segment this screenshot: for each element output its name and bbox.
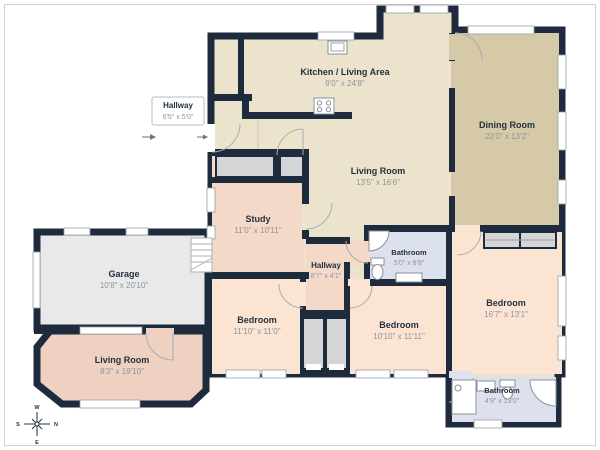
room-dims-bedroom-left: 11'10" x 11'0" (233, 327, 280, 336)
toilet-icon (372, 265, 383, 280)
door-gap (302, 204, 309, 230)
compass-hub (35, 422, 39, 426)
closet-door (329, 364, 344, 370)
door-gap (348, 279, 370, 286)
bedroom-left-fill (212, 278, 303, 374)
wall (306, 237, 350, 244)
hallway-callout: Hallway 6'5" x 5'0" (142, 97, 208, 140)
toilet-tank-icon (371, 258, 384, 265)
callout-dims: 6'5" x 5'0" (163, 114, 194, 121)
room-label-hallway-center: Hallway (311, 261, 341, 270)
floor-plan-page: Kitchen / Living Area 9'0" x 24'8" Livin… (0, 0, 600, 450)
window (420, 5, 448, 13)
room-label-kitchen-living: Kitchen / Living Area (300, 67, 390, 77)
door-gap (300, 282, 306, 306)
closet-door (306, 364, 321, 370)
window (33, 252, 40, 308)
compass-icon: W S N E (16, 405, 58, 446)
room-label-bathroom-center: Bathroom (391, 248, 427, 257)
window (207, 226, 215, 239)
compass-left-label: S (16, 422, 20, 428)
window (64, 228, 90, 235)
callout-title: Hallway (163, 101, 193, 110)
room-dims-bathroom-center: 5'0" x 8'8" (394, 260, 425, 267)
room-label-bedroom-left: Bedroom (237, 315, 277, 325)
room-label-bedroom-right: Bedroom (486, 298, 526, 308)
stairs-icon (191, 238, 212, 272)
shower-stall-icon (452, 380, 476, 414)
room-dims-hallway-center: 8'7" x 4'1" (311, 273, 342, 280)
window (468, 26, 534, 34)
wall (449, 88, 455, 172)
wall (302, 310, 350, 316)
cooktop-icon (314, 98, 334, 114)
window (80, 327, 142, 334)
window (558, 112, 566, 150)
window (356, 370, 390, 378)
window (558, 55, 566, 89)
kitchen-counter-wall (242, 112, 352, 119)
window (558, 276, 566, 326)
window (318, 32, 354, 40)
door-gap (146, 328, 174, 335)
window (207, 188, 215, 212)
wall (208, 272, 309, 279)
wall (238, 33, 244, 97)
compass-right-label: N (54, 422, 58, 428)
floor-plan-drawing: Kitchen / Living Area 9'0" x 24'8" Livin… (0, 0, 600, 450)
compass-up-label: W (34, 405, 40, 411)
room-dims-living-main: 13'5" x 16'6" (356, 178, 400, 187)
window (558, 180, 566, 204)
door-gap (449, 371, 473, 378)
room-label-study: Study (245, 214, 270, 224)
room-dims-dining: 22'0" x 13'2" (485, 132, 529, 141)
window (394, 370, 428, 378)
closet (280, 156, 303, 177)
entry-arrow-head-icon (150, 134, 156, 140)
dining-room-fill (452, 33, 559, 227)
window (386, 5, 414, 13)
room-label-garage: Garage (108, 269, 139, 279)
room-dims-bedroom-center: 10'10" x 11'11" (373, 332, 425, 341)
window (558, 336, 566, 360)
wall (449, 196, 455, 232)
room-dims-living-left: 8'3" x 19'10" (100, 367, 144, 376)
window (474, 420, 502, 428)
window (226, 370, 260, 378)
window (80, 400, 140, 408)
room-dims-kitchen-living: 9'0" x 24'8" (325, 79, 365, 88)
closet (304, 319, 323, 368)
window (262, 370, 286, 378)
room-dims-study: 11'0" x 10'11" (234, 226, 281, 235)
door-gap (455, 225, 480, 232)
wall (446, 232, 452, 374)
garage-structure (37, 232, 208, 328)
room-dims-garage: 10'8" x 20'10" (100, 281, 148, 290)
closet (327, 319, 346, 368)
door-gap (207, 124, 215, 152)
window (126, 228, 148, 235)
room-label-living-main: Living Room (351, 166, 406, 176)
room-label-dining: Dining Room (479, 120, 535, 130)
garage-room (37, 232, 208, 328)
room-label-bedroom-center: Bedroom (379, 320, 419, 330)
room-label-bathroom-right: Bathroom (484, 386, 520, 395)
door-gap (449, 34, 455, 60)
closet (216, 156, 274, 177)
room-label-living-left: Living Room (95, 355, 150, 365)
compass-down-label: E (35, 440, 39, 446)
bath-sink-icon (396, 273, 422, 282)
room-dims-bedroom-right: 16'7" x 13'1" (484, 310, 528, 319)
room-dims-bathroom-right: 4'9" x 13'0" (485, 398, 520, 405)
